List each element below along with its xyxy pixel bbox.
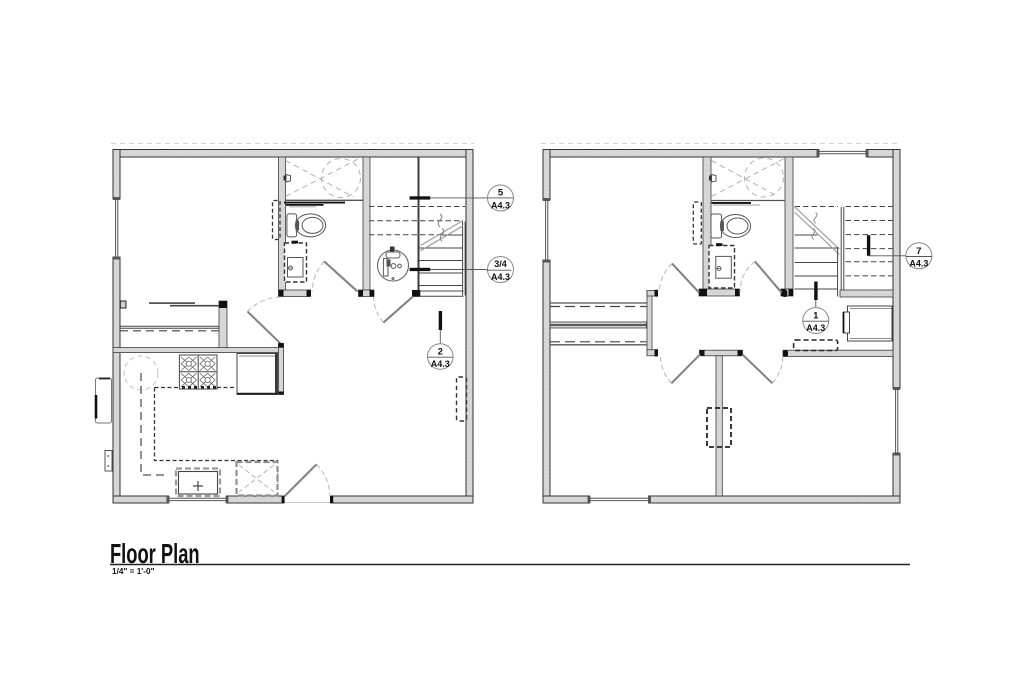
- svg-text:A4.3: A4.3: [491, 201, 510, 211]
- svg-text:A4.3: A4.3: [909, 258, 928, 268]
- svg-text:1: 1: [813, 311, 819, 322]
- svg-text:5: 5: [498, 188, 504, 199]
- svg-text:3/4: 3/4: [494, 259, 507, 269]
- svg-text:A4.3: A4.3: [491, 272, 510, 282]
- svg-text:A4.3: A4.3: [806, 323, 825, 333]
- svg-text:2: 2: [438, 347, 443, 358]
- svg-text:1/4" = 1'-0": 1/4" = 1'-0": [112, 566, 155, 576]
- svg-text:7: 7: [916, 246, 921, 257]
- svg-text:A4.3: A4.3: [431, 359, 450, 369]
